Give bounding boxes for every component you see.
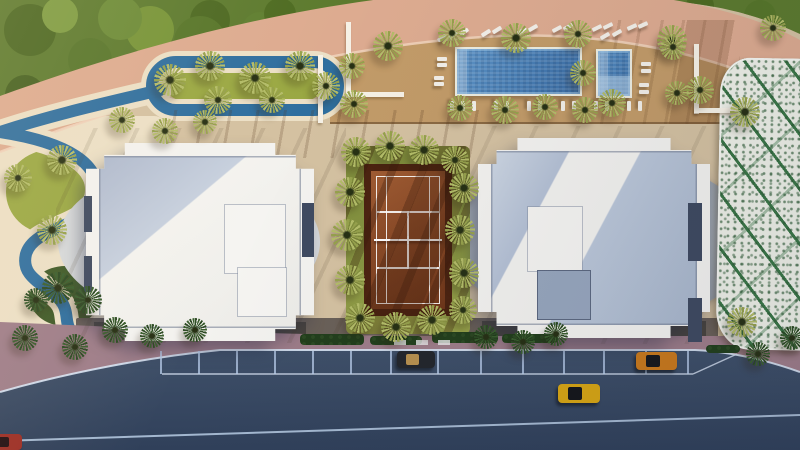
palm-tree: [152, 118, 178, 144]
palm-tree: [47, 145, 77, 175]
palm-tree: [544, 322, 568, 346]
palm-tree: [345, 303, 375, 333]
palm-tree: [445, 215, 475, 245]
palm-tree: [335, 177, 365, 207]
palm-tree: [727, 307, 757, 337]
palm-tree: [312, 72, 340, 100]
palm-tree: [780, 326, 800, 350]
palm-tree: [259, 87, 285, 113]
palm-tree: [686, 76, 714, 104]
palm-tree: [74, 286, 102, 314]
palm-tree: [598, 89, 626, 117]
palm-tree: [660, 34, 686, 60]
palm-tree: [154, 64, 186, 96]
palm-tree: [195, 51, 225, 81]
palm-tree: [665, 81, 689, 105]
palm-tree: [37, 215, 67, 245]
resort-site-plan-aerial-render: [0, 0, 800, 450]
palm-tree: [501, 23, 531, 53]
palm-tree: [730, 97, 760, 127]
palm-tree: [449, 258, 479, 288]
palm-tree: [441, 146, 469, 174]
palm-tree: [193, 110, 217, 134]
palm-tree: [572, 97, 598, 123]
palm-tree: [746, 342, 770, 366]
palm-tree: [447, 95, 473, 121]
palm-tree: [449, 173, 479, 203]
palm-tree: [417, 305, 447, 335]
palm-tree: [102, 317, 128, 343]
palm-tree: [438, 19, 466, 47]
palm-tree: [341, 137, 371, 167]
palm-tree: [12, 325, 38, 351]
palm-tree: [140, 324, 164, 348]
palm-tree: [409, 135, 439, 165]
palm-tree: [474, 325, 498, 349]
palm-tree: [331, 219, 363, 251]
palm-layer: [0, 0, 800, 450]
palm-tree: [570, 60, 596, 86]
palm-tree: [491, 96, 519, 124]
palm-tree: [564, 20, 592, 48]
palm-tree: [24, 288, 48, 312]
palm-tree: [381, 312, 411, 342]
palm-tree: [760, 15, 786, 41]
palm-tree: [335, 265, 365, 295]
palm-tree: [109, 107, 135, 133]
palm-tree: [62, 334, 88, 360]
palm-tree: [511, 330, 535, 354]
palm-tree: [4, 164, 32, 192]
palm-tree: [532, 94, 558, 120]
palm-tree: [340, 90, 368, 118]
palm-tree: [339, 53, 365, 79]
palm-tree: [183, 318, 207, 342]
palm-tree: [449, 296, 477, 324]
palm-tree: [375, 131, 405, 161]
palm-tree: [285, 51, 315, 81]
palm-tree: [373, 31, 403, 61]
